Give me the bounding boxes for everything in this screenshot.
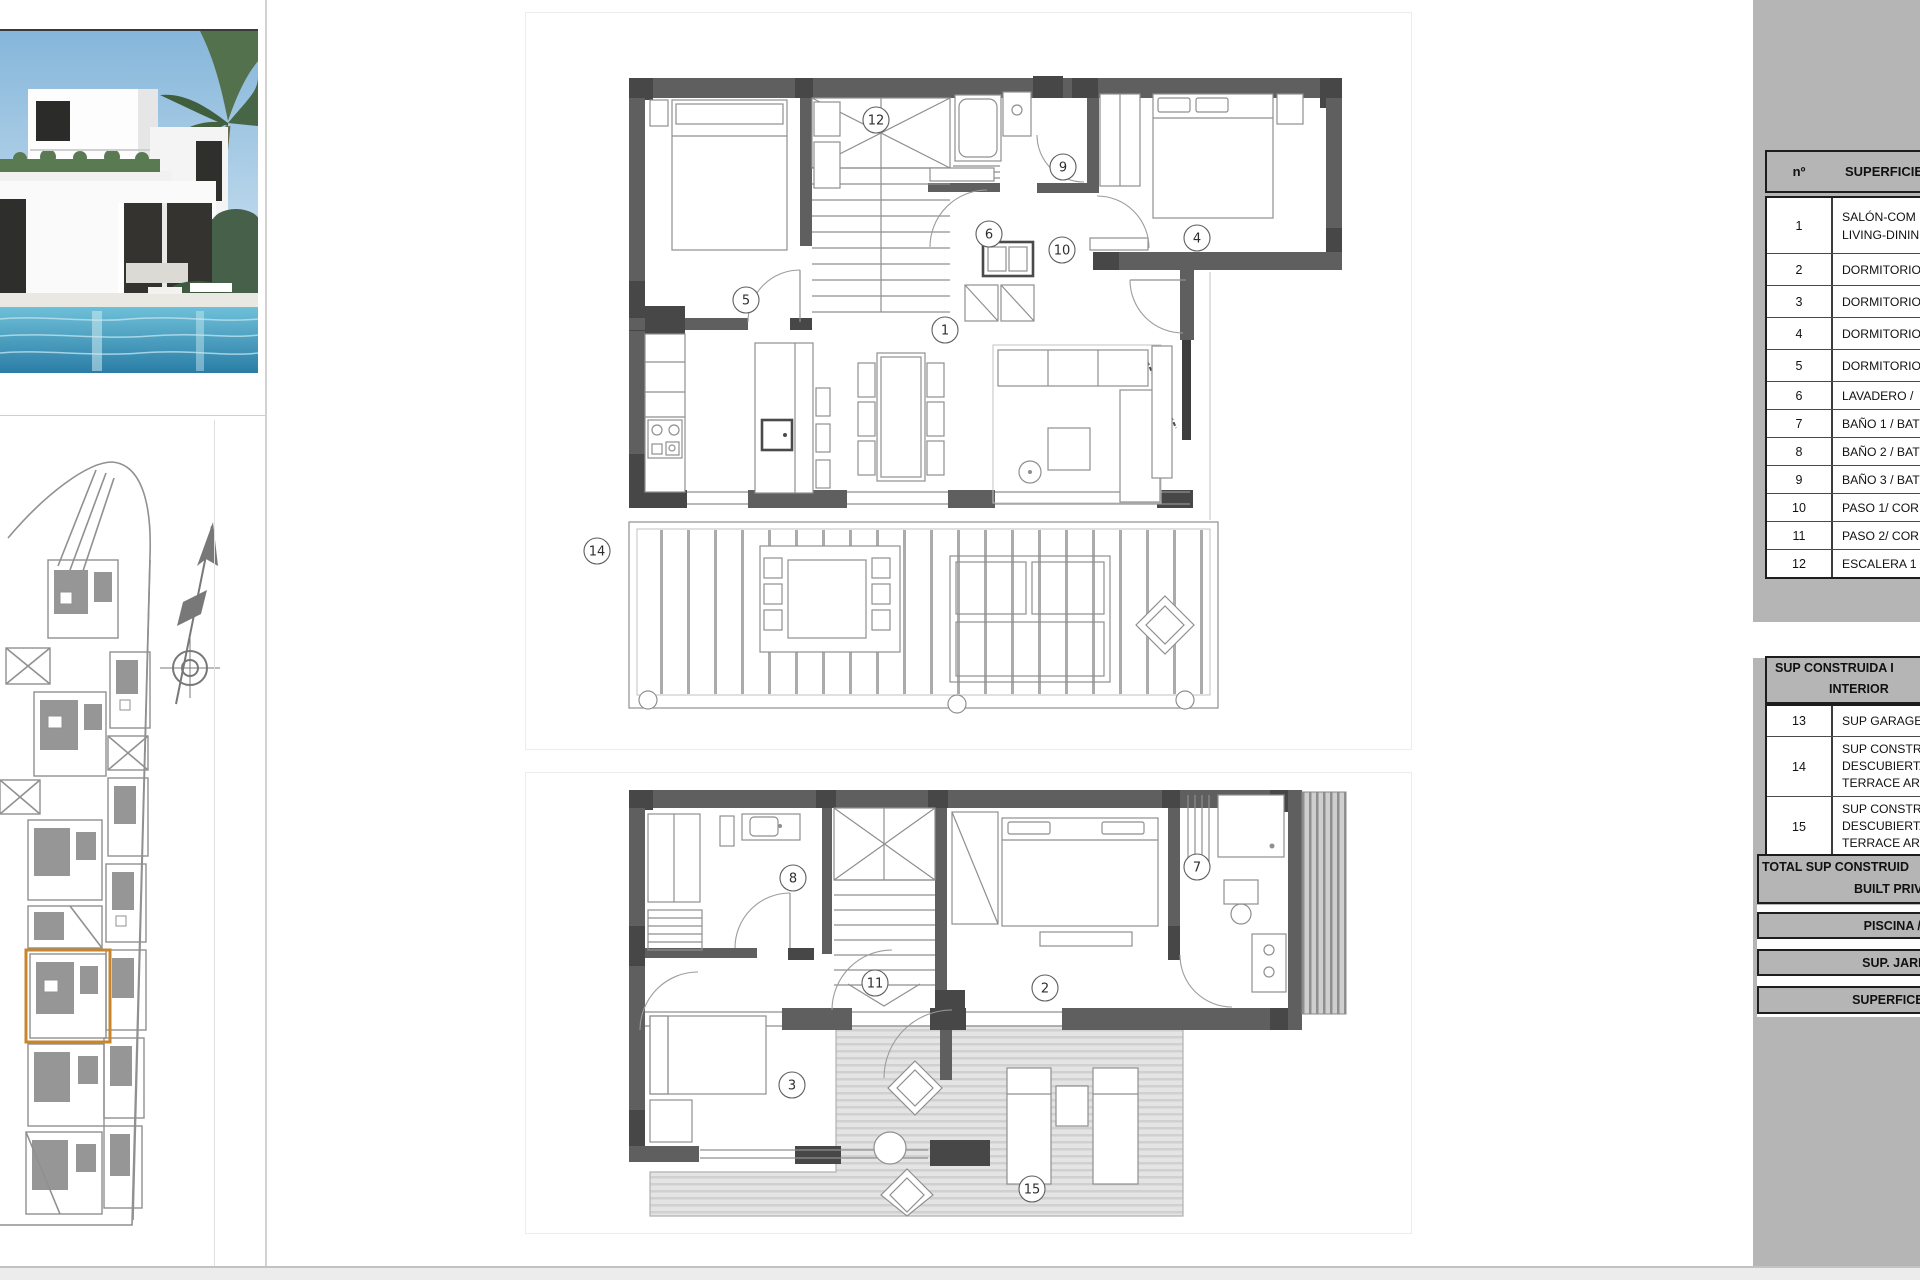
room-label-6: 6 <box>976 221 1002 247</box>
legend-row: 6 LAVADERO / <box>1767 381 1920 409</box>
svg-text:15: 15 <box>1024 1183 1041 1198</box>
row-label: LAVADERO / <box>1833 387 1913 405</box>
room-label-3: 3 <box>779 1072 805 1098</box>
row-number: 7 <box>1767 410 1833 437</box>
svg-text:14: 14 <box>589 545 606 560</box>
row-number: 5 <box>1767 350 1833 381</box>
row-label: BAÑO 3 / BAT <box>1833 471 1920 489</box>
row-label: DORMITORIO <box>1833 325 1920 343</box>
panel-white-gap <box>1753 622 1920 658</box>
room-label-7: 7 <box>1184 854 1210 880</box>
row-number: 11 <box>1767 522 1833 549</box>
site-units <box>0 560 150 1220</box>
bathroom-2 <box>648 814 800 950</box>
row-label: DORMITORIO <box>1833 357 1920 375</box>
row-number: 15 <box>1767 797 1833 856</box>
svg-text:4: 4 <box>1193 232 1201 247</box>
row-label: BAÑO 1 / BAT <box>1833 415 1920 433</box>
svg-text:2: 2 <box>1041 982 1049 997</box>
room-label-5: 5 <box>733 287 759 313</box>
svg-text:1: 1 <box>941 324 949 339</box>
pool-area-row: PISCINA / SWIM <box>1757 912 1920 939</box>
ground-floor-plan: 8 7 11 2 3 15 <box>520 760 1420 1230</box>
row-number: 8 <box>1767 438 1833 465</box>
bedroom-3 <box>640 972 766 1142</box>
row-number: 6 <box>1767 382 1833 409</box>
legend-row: 15 SUP CONSTRU DESCUBIERTA TERRACE ARE <box>1767 796 1920 856</box>
row-number: 1 <box>1767 198 1833 253</box>
legend-row: 5 DORMITORIO <box>1767 349 1920 381</box>
row-number: 10 <box>1767 494 1833 521</box>
swimming-pool <box>0 307 258 373</box>
louvre-screen <box>1302 792 1346 1014</box>
legend-header-number: nº <box>1767 164 1831 179</box>
legend-row: 2 DORMITORIO <box>1767 253 1920 285</box>
legend-row: 12 ESCALERA 1 / <box>1767 549 1920 577</box>
legend-row: 13 SUP GARAGE <box>1767 706 1920 736</box>
sofa-area <box>993 345 1172 503</box>
legend-footer-zone: PISCINA / SWIM SUP. JARDÍN / G SUPERFICE… <box>1757 905 1920 1017</box>
legend-row: 8 BAÑO 2 / BAT <box>1767 437 1920 465</box>
svg-text:7: 7 <box>1193 861 1201 876</box>
legend-row: 14 SUP CONSTRU DESCUBIERTA TERRACE ARE <box>1767 736 1920 796</box>
row-label: PASO 1/ COR <box>1833 499 1919 517</box>
legend-row: 7 BAÑO 1 / BAT <box>1767 409 1920 437</box>
row-label: BAÑO 2 / BAT <box>1833 443 1920 461</box>
legend-room-table: 1 SALÓN-COMLIVING-DININ 2 DORMITORIO 3 D… <box>1765 196 1920 579</box>
legend-row: 3 DORMITORIO <box>1767 285 1920 317</box>
room-label-1: 1 <box>932 317 958 343</box>
site-driveway-lines <box>58 470 114 574</box>
svg-text:3: 3 <box>788 1079 796 1094</box>
row-label: DORMITORIO <box>1833 261 1920 279</box>
room-label-15: 15 <box>1019 1176 1045 1202</box>
bottom-strip <box>0 1268 1920 1280</box>
legend-row: 9 BAÑO 3 / BAT <box>1767 465 1920 493</box>
legend-row: 10 PASO 1/ COR <box>1767 493 1920 521</box>
row-number: 4 <box>1767 318 1833 349</box>
row-label: SUP CONSTRU DESCUBIERTA TERRACE ARE <box>1833 741 1920 792</box>
legend-built-header: SUP CONSTRUIDA I INTERIOR <box>1765 656 1920 704</box>
legend-row: 1 SALÓN-COMLIVING-DININ <box>1767 198 1920 253</box>
bathroom-1 <box>1180 795 1286 1007</box>
svg-text:10: 10 <box>1054 244 1071 259</box>
room-label-4: 4 <box>1184 225 1210 251</box>
legend-total-row: TOTAL SUP CONSTRUID BUILT PRIVA <box>1757 854 1920 904</box>
room-label-12: 12 <box>863 107 889 133</box>
row-label: SUP CONSTRU DESCUBIERTA TERRACE ARE <box>1833 801 1920 852</box>
legend-panel: nº SUPERFICIE Ú 1 SALÓN-COMLIVING-DININ … <box>1753 0 1920 1266</box>
svg-text:9: 9 <box>1059 161 1067 176</box>
left-column-divider <box>0 415 266 416</box>
row-label: ESCALERA 1 / <box>1833 555 1920 573</box>
svg-text:11: 11 <box>867 977 884 992</box>
garden-area-row: SUP. JARDÍN / G <box>1757 949 1920 976</box>
north-arrow-icon <box>160 522 220 704</box>
row-label: PASO 2/ COR <box>1833 527 1919 545</box>
villa-photo <box>0 31 258 373</box>
legend-header-label: SUPERFICIE Ú <box>1831 164 1920 179</box>
row-number: 2 <box>1767 254 1833 285</box>
plot-area-row: SUPERFICE PARCE <box>1757 986 1920 1014</box>
svg-text:8: 8 <box>789 872 797 887</box>
first-floor-plan: 12 9 4 6 10 5 1 14 <box>520 40 1420 730</box>
svg-text:6: 6 <box>985 228 993 243</box>
row-number: 13 <box>1767 706 1833 736</box>
row-label: SUP GARAGE <box>1833 712 1920 730</box>
room-label-10: 10 <box>1049 237 1075 263</box>
room-label-9: 9 <box>1050 154 1076 180</box>
room-label-8: 8 <box>780 865 806 891</box>
legend-row: 4 DORMITORIO <box>1767 317 1920 349</box>
row-number: 14 <box>1767 737 1833 796</box>
row-number: 3 <box>1767 286 1833 317</box>
row-label: SALÓN-COMLIVING-DININ <box>1833 208 1919 244</box>
site-sheet-border <box>214 420 215 1266</box>
site-plan <box>0 420 266 1270</box>
dining-table <box>858 353 944 481</box>
room-label-14: 14 <box>584 538 610 564</box>
room-label-2: 2 <box>1032 975 1058 1001</box>
legend-built-table: 13 SUP GARAGE 14 SUP CONSTRU DESCUBIERTA… <box>1765 704 1920 858</box>
pergola-deck <box>629 522 1218 713</box>
svg-text:12: 12 <box>868 114 885 129</box>
legend-header-row: nº SUPERFICIE Ú <box>1765 150 1920 193</box>
svg-text:5: 5 <box>742 294 750 309</box>
kitchen <box>645 306 830 493</box>
column-separator <box>265 0 267 1266</box>
legend-row: 11 PASO 2/ COR <box>1767 521 1920 549</box>
row-number: 9 <box>1767 466 1833 493</box>
row-number: 12 <box>1767 550 1833 577</box>
room-label-11: 11 <box>862 970 888 996</box>
row-label: DORMITORIO <box>1833 293 1920 311</box>
